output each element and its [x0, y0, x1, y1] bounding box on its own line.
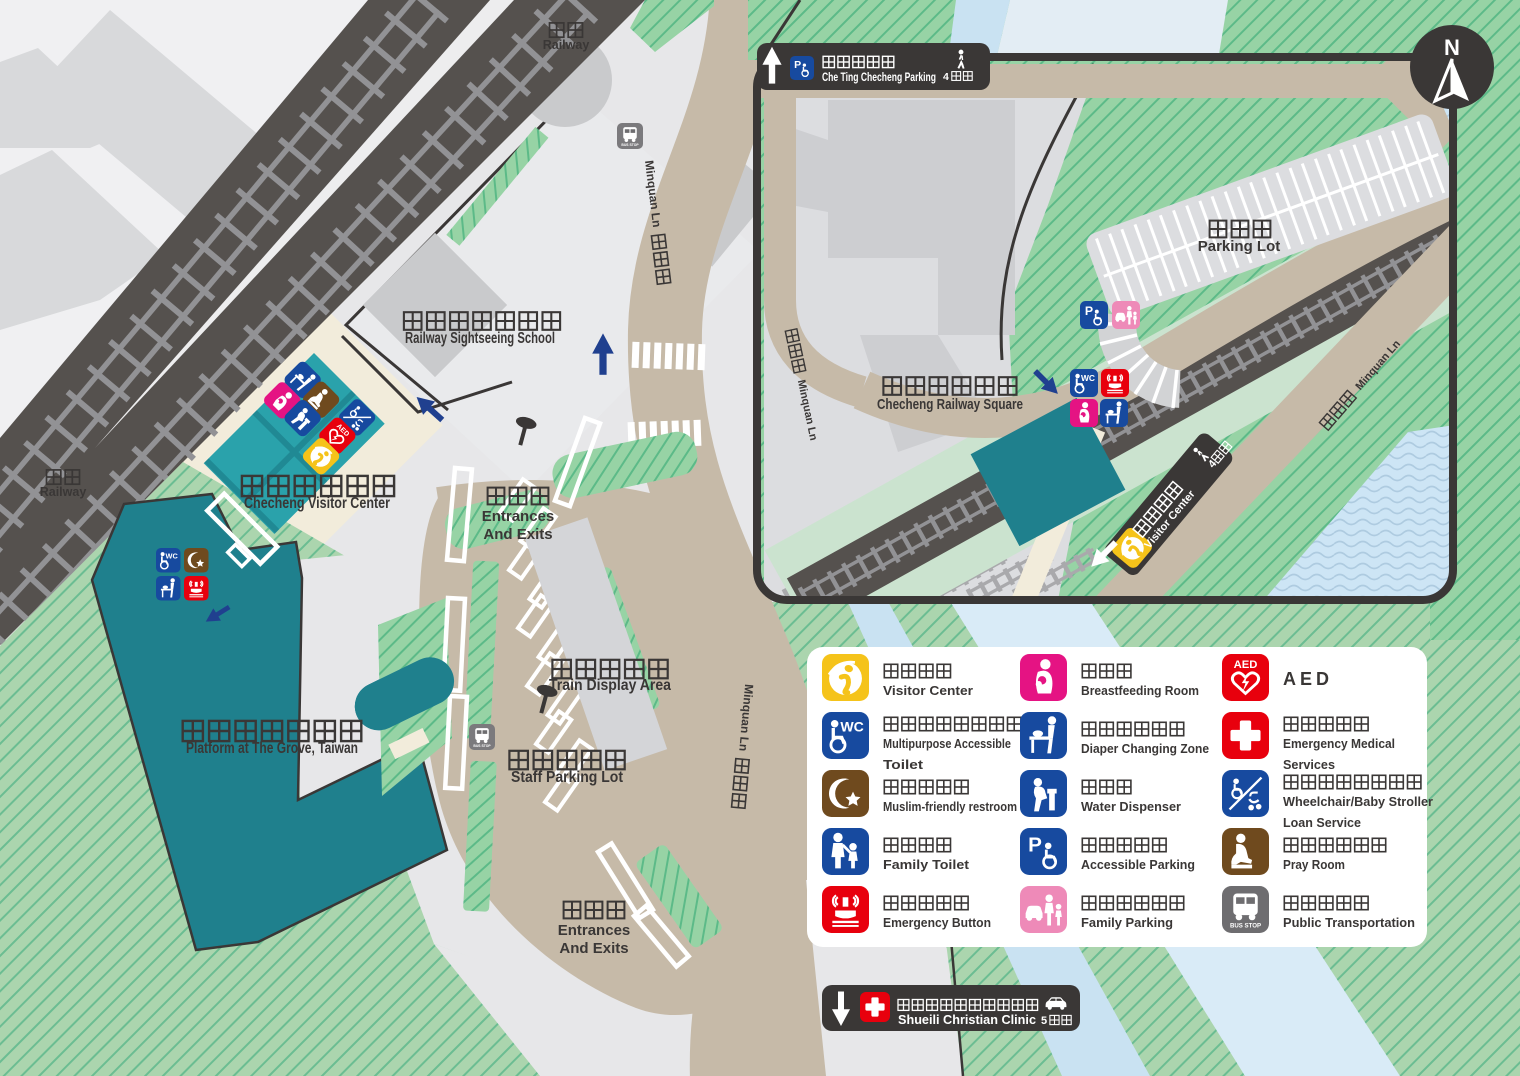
svg-text:Railway: Railway: [543, 38, 590, 52]
svg-text:Railway Sightseeing School: Railway Sightseeing School: [405, 330, 555, 347]
svg-text:Entrances: Entrances: [558, 922, 631, 939]
svg-text:Che Ting Checheng Parking: Che Ting Checheng Parking: [822, 70, 936, 84]
svg-text:Services: Services: [1283, 757, 1335, 772]
svg-text:Toilet: Toilet: [883, 757, 924, 772]
svg-text:Staff Parking Lot: Staff Parking Lot: [511, 769, 623, 786]
svg-text:Muslim-friendly restroom: Muslim-friendly restroom: [883, 799, 1017, 814]
svg-text:Loan Service: Loan Service: [1283, 815, 1361, 830]
svg-text:Train Display Area: Train Display Area: [549, 677, 671, 694]
svg-text:Visitor Center: Visitor Center: [883, 683, 973, 698]
svg-text:Checheng Visitor Center: Checheng Visitor Center: [244, 495, 390, 512]
svg-text:Diaper Changing Zone: Diaper Changing Zone: [1081, 741, 1209, 756]
svg-text:Emergency Medical: Emergency Medical: [1283, 736, 1395, 751]
svg-text:Parking Lot: Parking Lot: [1198, 238, 1281, 255]
svg-text:Family Parking: Family Parking: [1081, 915, 1173, 930]
svg-text:4: 4: [943, 71, 949, 83]
svg-text:Entrances: Entrances: [482, 508, 555, 525]
svg-text:Accessible Parking: Accessible Parking: [1081, 857, 1195, 872]
svg-text:Platform at The Grove, Taiwan: Platform at The Grove, Taiwan: [186, 740, 358, 757]
svg-text:And Exits: And Exits: [559, 940, 628, 957]
svg-text:Emergency Button: Emergency Button: [883, 915, 991, 930]
svg-text:And Exits: And Exits: [483, 526, 552, 543]
svg-text:Multipurpose Accessible: Multipurpose Accessible: [883, 736, 1011, 751]
svg-text:Breastfeeding Room: Breastfeeding Room: [1081, 683, 1199, 698]
svg-text:N: N: [1444, 35, 1460, 60]
svg-text:Checheng Railway Square: Checheng Railway Square: [877, 396, 1023, 413]
svg-text:Railway: Railway: [40, 485, 87, 499]
svg-text:Public Transportation: Public Transportation: [1283, 915, 1415, 930]
svg-text:Water Dispenser: Water Dispenser: [1081, 799, 1181, 814]
svg-text:5: 5: [1041, 1015, 1047, 1027]
svg-text:Wheelchair/Baby Stroller: Wheelchair/Baby Stroller: [1283, 794, 1433, 809]
svg-text:Family Toilet: Family Toilet: [883, 857, 970, 872]
svg-text:Shueili Christian Clinic: Shueili Christian Clinic: [898, 1013, 1036, 1027]
svg-text:AED: AED: [1283, 669, 1333, 689]
svg-text:Pray Room: Pray Room: [1283, 857, 1345, 872]
